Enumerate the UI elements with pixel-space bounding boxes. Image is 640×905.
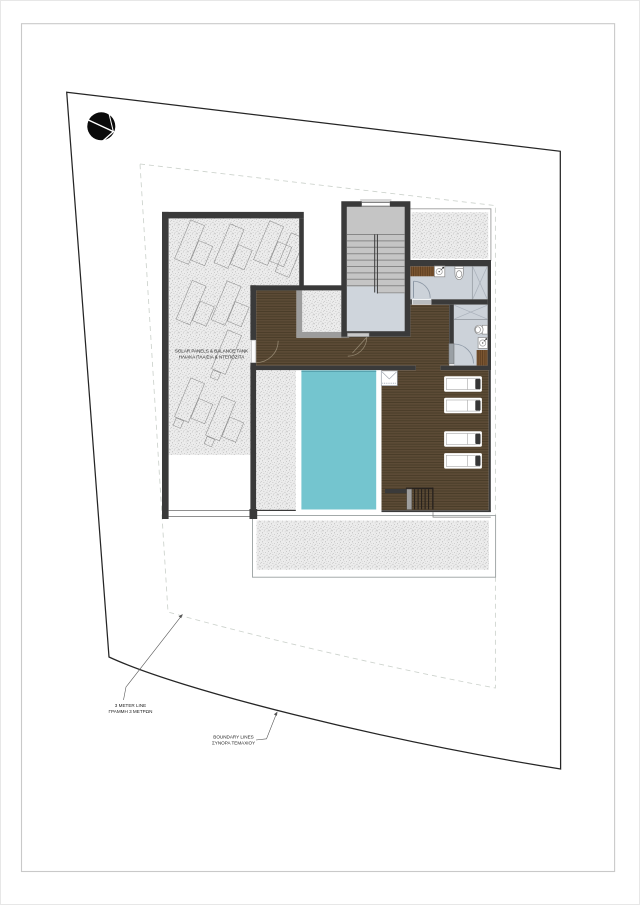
svg-text:SOLAR PANELS & BALANCE TANK: SOLAR PANELS & BALANCE TANK [175,348,248,353]
svg-text:3 METER LINE: 3 METER LINE [115,703,146,708]
svg-text:ΗΛΙΑΚΑ ΠΛΑΙΣΙΑ & ΝΤΕΠΟΖΙΤΑ: ΗΛΙΑΚΑ ΠΛΑΙΣΙΑ & ΝΤΕΠΟΖΙΤΑ [179,354,244,359]
svg-text:ΓΡΑΜΜΗ 3 ΜΕΤΡΩΝ: ΓΡΑΜΜΗ 3 ΜΕΤΡΩΝ [109,709,153,714]
svg-text:ΣΥΝΟΡΑ ΤΕΜΑΧΙΟΥ: ΣΥΝΟΡΑ ΤΕΜΑΧΙΟΥ [212,741,255,746]
svg-text:BOUNDARY LINES: BOUNDARY LINES [213,735,253,740]
